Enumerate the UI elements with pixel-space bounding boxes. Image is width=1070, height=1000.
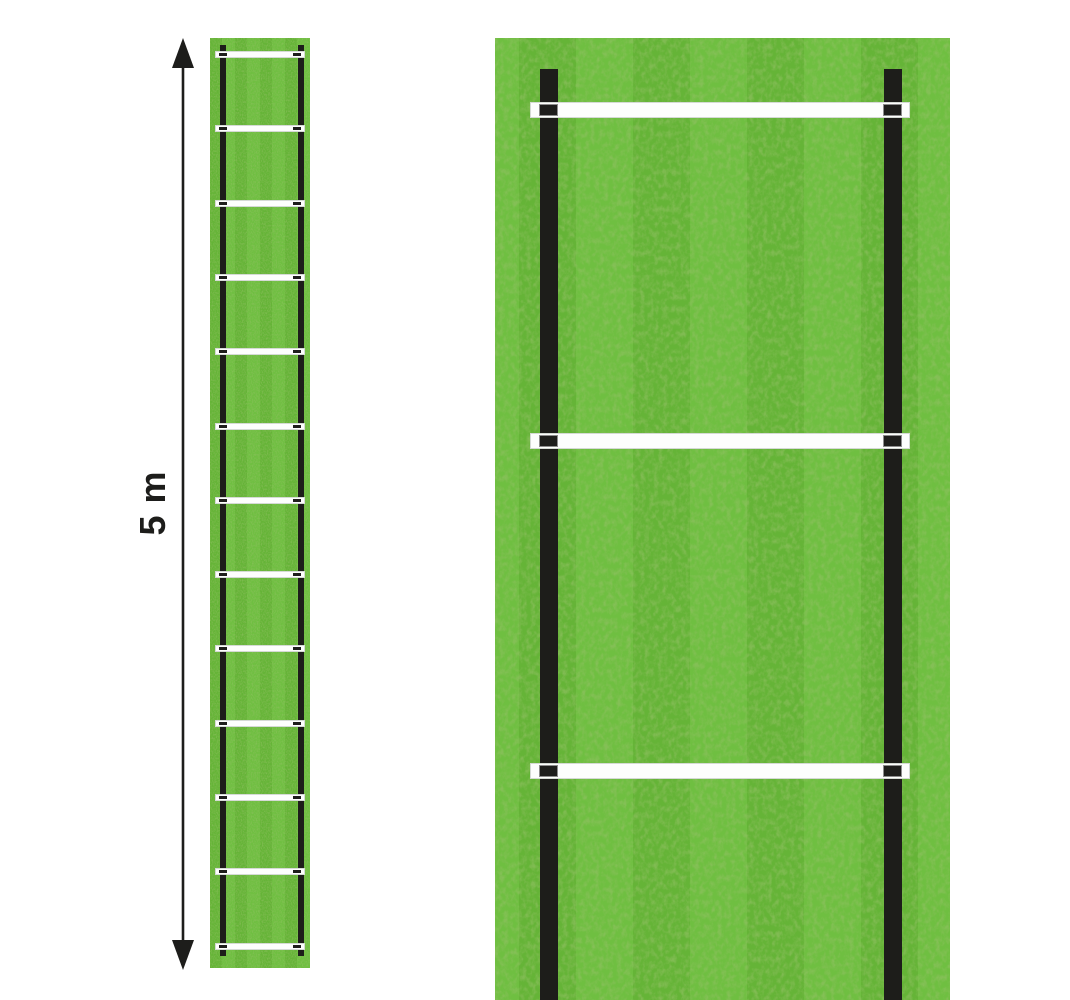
dimension-arrow <box>171 38 195 970</box>
ladder-rung <box>215 200 305 207</box>
dimension-label: 5 m <box>133 443 173 563</box>
ladder-rung <box>215 571 305 578</box>
ladder-detail-panel <box>495 38 950 1000</box>
ladder-rung <box>530 102 910 118</box>
ladder-rung <box>215 274 305 281</box>
rung-insert-right <box>293 722 301 725</box>
ladder-rung <box>530 763 910 779</box>
ladder-rung <box>530 433 910 449</box>
ladder-rung <box>215 125 305 132</box>
rung-insert-right <box>293 127 301 130</box>
grass-texture <box>495 38 950 1000</box>
ladder-rung <box>215 51 305 58</box>
rung-insert-right <box>883 765 902 777</box>
rung-insert-right <box>293 350 301 353</box>
rung-insert-left <box>219 647 227 650</box>
agility-ladder-figure: 5 m <box>0 0 1070 1000</box>
ladder-rung <box>215 794 305 801</box>
arrow-head-top-icon <box>172 38 194 68</box>
rung-insert-right <box>293 647 301 650</box>
rung-insert-right <box>293 796 301 799</box>
rung-insert-left <box>539 104 558 116</box>
rung-insert-right <box>293 425 301 428</box>
rung-insert-left <box>539 435 558 447</box>
ladder-rung <box>215 645 305 652</box>
rung-insert-right <box>293 53 301 56</box>
rung-insert-right <box>293 202 301 205</box>
rung-insert-left <box>539 765 558 777</box>
rung-insert-right <box>293 945 301 948</box>
rung-insert-left <box>219 945 227 948</box>
rung-insert-left <box>219 276 227 279</box>
rung-insert-left <box>219 573 227 576</box>
ladder-rung <box>215 868 305 875</box>
rung-insert-left <box>219 350 227 353</box>
rung-insert-left <box>219 499 227 502</box>
ladder-rung <box>215 943 305 950</box>
rung-insert-left <box>219 870 227 873</box>
rung-insert-right <box>883 104 902 116</box>
arrow-head-bottom-icon <box>172 940 194 970</box>
rung-insert-right <box>293 870 301 873</box>
ladder-rung <box>215 497 305 504</box>
rung-insert-left <box>219 53 227 56</box>
ladder-overview-panel <box>210 38 310 968</box>
rung-insert-right <box>883 435 902 447</box>
ladder-rung <box>215 348 305 355</box>
ladder-rung <box>215 423 305 430</box>
rung-insert-right <box>293 276 301 279</box>
rung-insert-right <box>293 499 301 502</box>
ladder-rung <box>215 720 305 727</box>
rung-insert-left <box>219 425 227 428</box>
rung-insert-left <box>219 127 227 130</box>
rung-insert-left <box>219 722 227 725</box>
rung-insert-right <box>293 573 301 576</box>
rung-insert-left <box>219 796 227 799</box>
ladder-rail-right <box>884 69 902 1000</box>
rung-insert-left <box>219 202 227 205</box>
ladder-rail-left <box>540 69 558 1000</box>
